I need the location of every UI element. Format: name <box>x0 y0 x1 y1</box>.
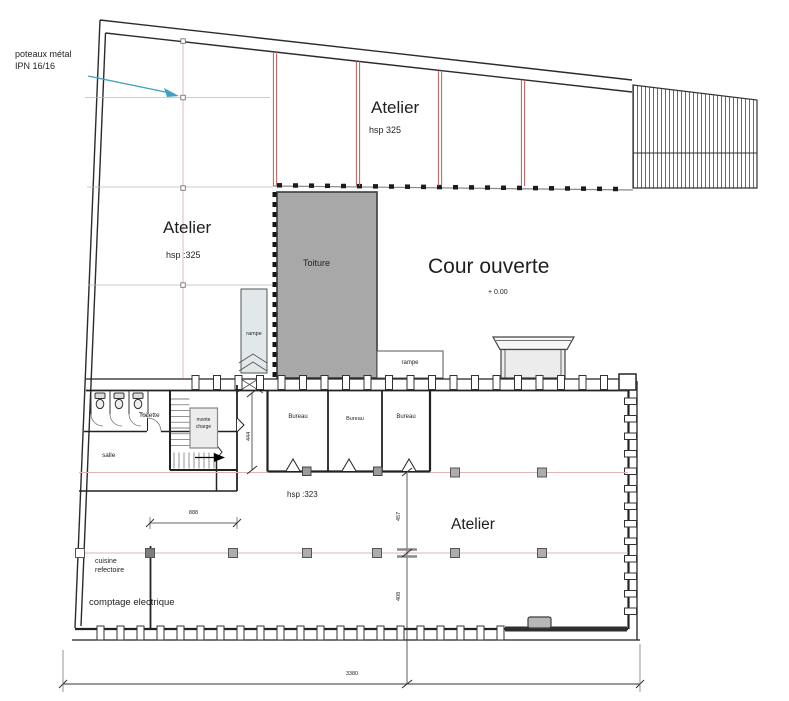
hall-label: salle <box>102 452 115 460</box>
toilets-label: Toilette <box>139 412 160 420</box>
interior-partitions <box>79 385 244 628</box>
freight-lift-label: monte charge <box>190 417 217 430</box>
upper-workshop-ceiling: hsp 325 <box>369 125 401 136</box>
courtyard-structure <box>493 337 574 378</box>
dimension-lines <box>59 389 644 692</box>
dim-444: 444 <box>246 432 253 441</box>
courtyard-label: Cour ouverte <box>428 254 549 279</box>
kitchen-line2: refectoire <box>95 566 124 575</box>
dim-888: 888 <box>150 510 237 517</box>
ramp-left-label: rampe <box>242 331 266 338</box>
stairwell <box>170 390 237 470</box>
electrical-label: comptage electrique <box>89 597 175 608</box>
freight-lift-line2: charge <box>190 424 217 431</box>
structural-columns <box>76 468 547 558</box>
dim-408: 408 <box>396 592 403 601</box>
left-workshop-ceiling: hsp :325 <box>166 250 201 261</box>
upper-workshop-label: Atelier <box>371 98 419 118</box>
toilet-block <box>91 391 148 427</box>
toilet-icon <box>133 393 143 409</box>
leader-arrow-icon <box>88 76 179 97</box>
annotation-line2: IPN 16/16 <box>15 61 72 73</box>
red-partitions <box>273 52 524 186</box>
left-workshop-label: Atelier <box>163 218 211 238</box>
annotation-line1: poteaux métal <box>15 49 72 61</box>
courtyard-level: + 0.00 <box>488 289 508 297</box>
roof-structure-outline <box>633 85 757 188</box>
toilet-icon <box>114 393 124 409</box>
office-block <box>268 391 431 476</box>
roof-label: Toiture <box>303 258 330 269</box>
roof-slab <box>277 192 377 378</box>
facade-column-ticks <box>277 183 618 191</box>
equipment-box <box>528 617 551 628</box>
office-1-label: Bureau <box>268 414 328 421</box>
lower-workshop-label: Atelier <box>451 516 495 535</box>
toilet-icon <box>95 393 105 409</box>
steel-column-annotation: poteaux métal IPN 16/16 <box>15 49 72 72</box>
floor-plan-canvas: poteaux métal IPN 16/16 Atelier hsp 325 … <box>0 0 789 701</box>
kitchen-line1: cuisine <box>95 557 124 566</box>
office-2-label: Bureau <box>328 416 382 423</box>
facade-window-pattern-right <box>625 398 637 615</box>
facade-window-pattern-bottom <box>97 626 504 640</box>
dim-3380: 3380 <box>330 671 374 678</box>
lower-workshop-ceiling: hsp :323 <box>287 490 318 500</box>
kitchen-label: cuisine refectoire <box>95 557 124 575</box>
office-3-label: Bureau <box>382 414 430 421</box>
dim-457: 457 <box>396 512 403 521</box>
ramp-right-label: rampe <box>377 360 443 367</box>
